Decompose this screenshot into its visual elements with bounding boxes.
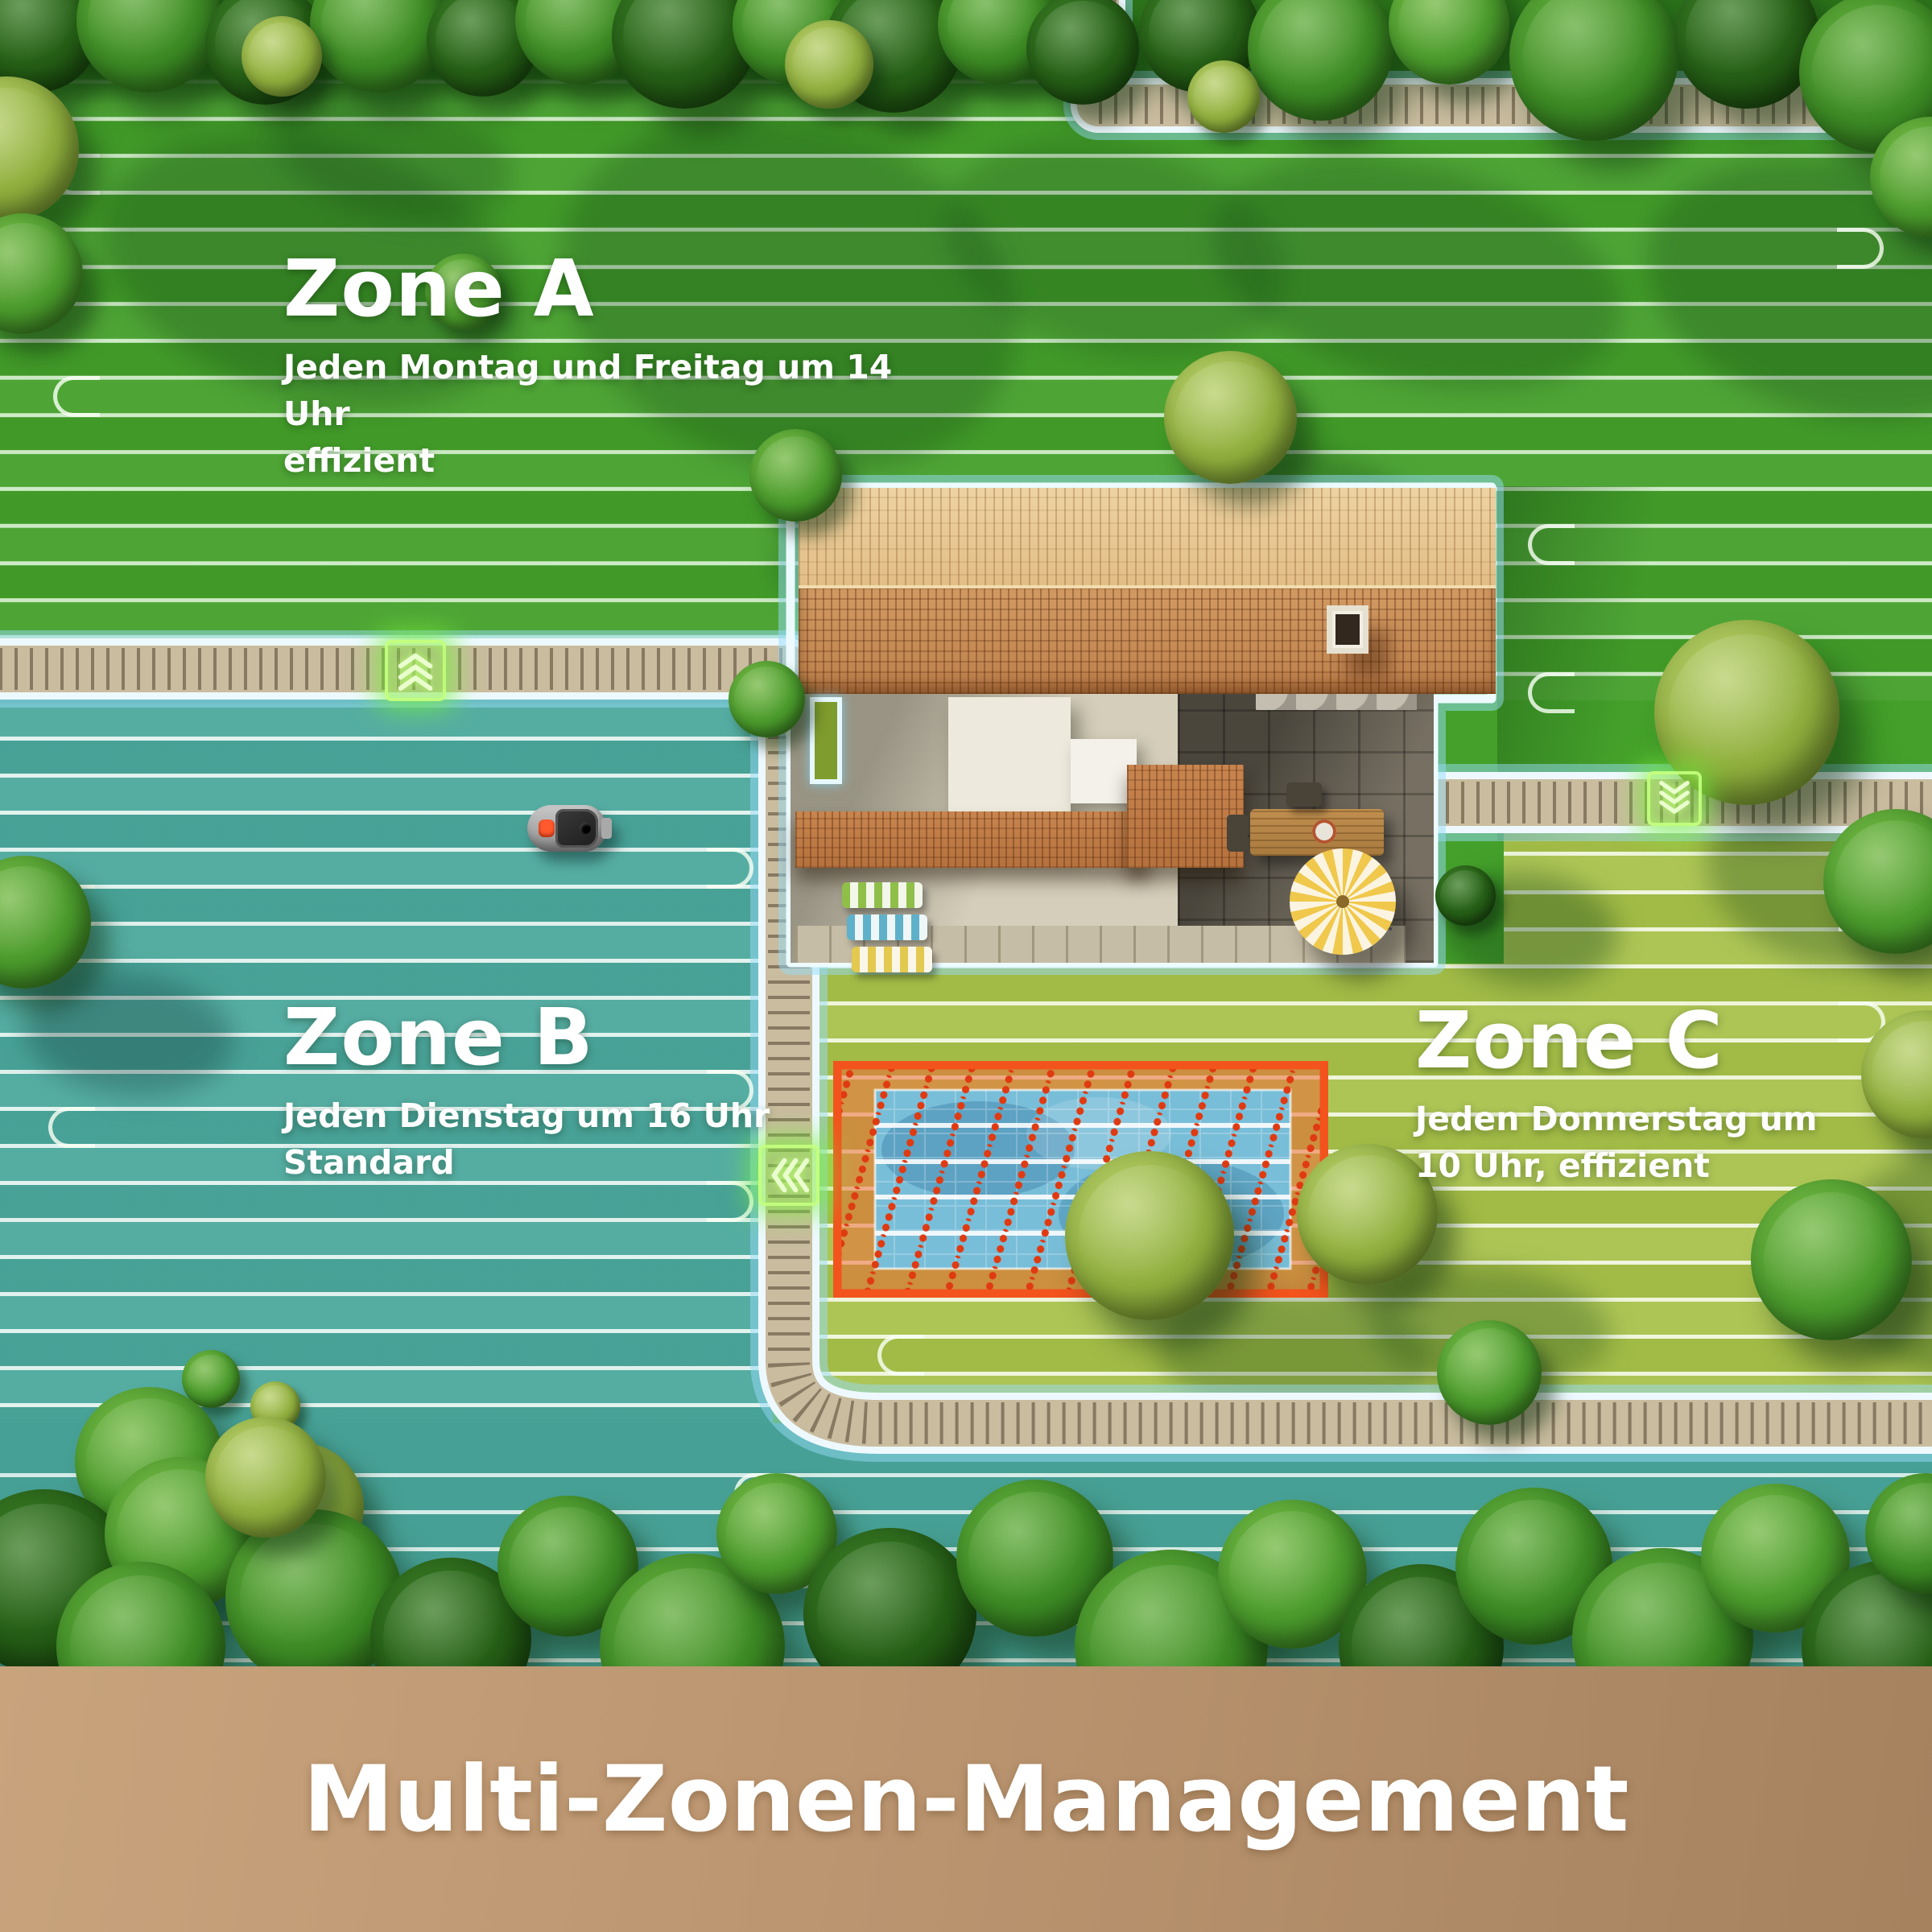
zone-c-mode: 10 Uhr, effizient [1415, 1146, 1710, 1185]
zone-c-title: Zone C [1415, 1001, 1818, 1080]
tree [729, 661, 805, 737]
zone-a-label: Zone A Jeden Montag und Freitag um 14 Uh… [283, 250, 927, 485]
lounger-towel [842, 882, 923, 908]
house-roof [799, 488, 1496, 694]
garden-bed [810, 697, 842, 784]
tree [1751, 1179, 1912, 1340]
tree [1435, 865, 1496, 926]
tree [785, 20, 873, 109]
patio-chair [1286, 782, 1322, 807]
mower-stop-button [539, 819, 555, 837]
tree [1187, 60, 1260, 133]
mower-top-panel [555, 809, 598, 848]
yard-scene: Zone A Jeden Montag und Freitag um 14 Uh… [0, 0, 1932, 1666]
mower-bumper [601, 818, 612, 839]
zone-transfer-marker-a-c [1647, 771, 1702, 826]
zone-b-mode: Standard [283, 1143, 455, 1182]
tree [242, 16, 322, 97]
tree [1164, 351, 1297, 484]
banner-title: Multi-Zonen-Management [303, 1746, 1629, 1852]
zone-transfer-marker-a-b [385, 640, 446, 701]
roof-upper-slope [799, 488, 1496, 588]
mower-camera-icon [580, 823, 591, 834]
chevron-down-icon [1650, 774, 1699, 823]
zone-a-mode: effizient [283, 441, 435, 480]
tree [1437, 1320, 1542, 1425]
chimney [1327, 605, 1368, 654]
chevron-up-icon [388, 643, 443, 698]
bottom-banner: Multi-Zonen-Management [0, 1666, 1932, 1932]
zone-b-label: Zone B Jeden Dienstag um 16 Uhr Standard [283, 998, 770, 1186]
tree [205, 1417, 326, 1538]
patio-umbrella [1290, 848, 1396, 955]
zone-c-schedule: Jeden Donnerstag um [1415, 1100, 1818, 1138]
zone-a-title: Zone A [283, 250, 927, 328]
marketing-image: Zone A Jeden Montag und Freitag um 14 Uh… [0, 0, 1932, 1932]
robot-mower [527, 805, 606, 852]
lounger-towel [847, 914, 927, 940]
tree [1065, 1151, 1234, 1320]
zone-b-schedule: Jeden Dienstag um 16 Uhr [283, 1096, 770, 1135]
roof-lower-slope [799, 588, 1496, 694]
porch-roof [1127, 765, 1244, 868]
lounger-towel [852, 947, 932, 972]
patio-chair [1227, 815, 1248, 852]
zone-b-title: Zone B [283, 998, 770, 1076]
zone-a-schedule: Jeden Montag und Freitag um 14 Uhr [283, 348, 892, 433]
zone-c-label: Zone C Jeden Donnerstag um 10 Uhr, effiz… [1415, 1001, 1818, 1189]
garage-roof [795, 811, 1150, 868]
table-plate [1312, 819, 1336, 844]
